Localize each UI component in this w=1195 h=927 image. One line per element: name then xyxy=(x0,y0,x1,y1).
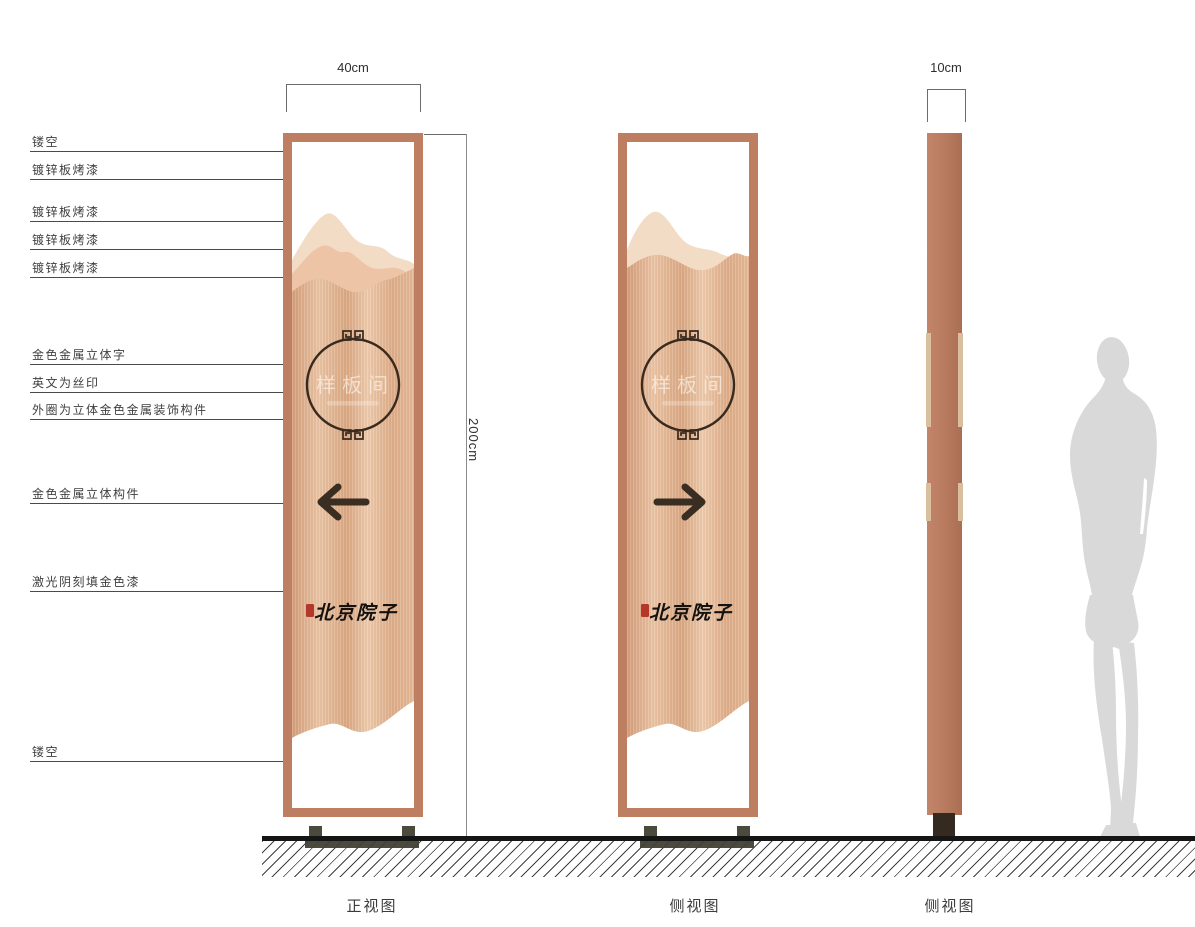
brand-calligraphy: 北京院子 xyxy=(314,602,398,624)
annotation-label: 镀锌板烤漆 xyxy=(32,231,100,248)
caption-side-view: 侧视图 xyxy=(924,895,975,916)
dimension-tick xyxy=(424,134,466,135)
side-protrusion-strip xyxy=(958,483,963,521)
room-label-text: 样板间 xyxy=(651,374,729,397)
brand-calligraphy: 北京院子 xyxy=(649,602,733,624)
side-view-foot xyxy=(933,813,955,838)
room-label-text: 样板间 xyxy=(316,374,394,397)
front-width-dimension: 40cm xyxy=(337,60,369,75)
annotation-label: 金色金属立体构件 xyxy=(32,485,140,502)
brushed-texture xyxy=(627,253,749,738)
annotation-label: 英文为丝印 xyxy=(32,374,100,391)
annotation-label: 镂空 xyxy=(32,133,59,150)
annotation-leader-line xyxy=(30,419,315,420)
middle-sign-artwork: 样板间 北京院子 xyxy=(627,142,749,808)
annotation-leader-line xyxy=(30,179,286,180)
side-protrusion-strip xyxy=(958,333,963,427)
front-sign-artwork: 样板间 北京院子 xyxy=(292,142,414,808)
height-dimension: 200cm xyxy=(466,418,481,462)
annotation-leader-line xyxy=(30,151,306,152)
annotation-label: 外圈为立体金色金属装饰构件 xyxy=(32,401,208,418)
red-seal xyxy=(641,604,649,617)
middle-view-sign: 样板间 北京院子 xyxy=(618,133,758,817)
dimension-bracket xyxy=(286,84,420,85)
ground-hatch xyxy=(262,841,1195,877)
annotation-label: 镀锌板烤漆 xyxy=(32,161,100,178)
annotation-leader-line xyxy=(30,277,292,278)
dimension-tick xyxy=(286,84,287,112)
dimension-tick xyxy=(420,84,421,112)
spec-sheet-canvas: 镂空 镀锌板烤漆 镀锌板烤漆 镀锌板烤漆 镀锌板烤漆 金色金属立体字 英文为丝印… xyxy=(0,0,1195,927)
annotation-label: 镀锌板烤漆 xyxy=(32,259,100,276)
dimension-bracket xyxy=(927,89,965,90)
annotation-label: 金色金属立体字 xyxy=(32,346,127,363)
silkscreen-english-text xyxy=(662,401,714,406)
annotation-label: 激光阴刻填金色漆 xyxy=(32,573,140,590)
caption-middle-view: 侧视图 xyxy=(669,895,720,916)
height-dimension-line xyxy=(466,134,467,836)
front-view-sign: 样板间 北京院子 xyxy=(283,133,423,817)
annotation-leader-line xyxy=(30,591,311,592)
side-view-column xyxy=(927,133,962,815)
annotation-leader-line xyxy=(30,761,301,762)
side-width-dimension: 10cm xyxy=(930,60,962,75)
silkscreen-english-text xyxy=(327,401,379,406)
caption-front-view: 正视图 xyxy=(346,895,397,916)
red-seal xyxy=(306,604,314,617)
dimension-tick xyxy=(927,89,928,122)
annotation-leader-line xyxy=(30,249,294,250)
side-protrusion-strip xyxy=(926,483,931,521)
annotation-label: 镀锌板烤漆 xyxy=(32,203,100,220)
annotation-leader-line xyxy=(30,392,322,393)
annotation-leader-line xyxy=(30,221,326,222)
dimension-tick xyxy=(965,89,966,122)
human-scale-silhouette xyxy=(1040,328,1180,843)
side-protrusion-strip xyxy=(926,333,931,427)
annotation-label: 镂空 xyxy=(32,743,59,760)
